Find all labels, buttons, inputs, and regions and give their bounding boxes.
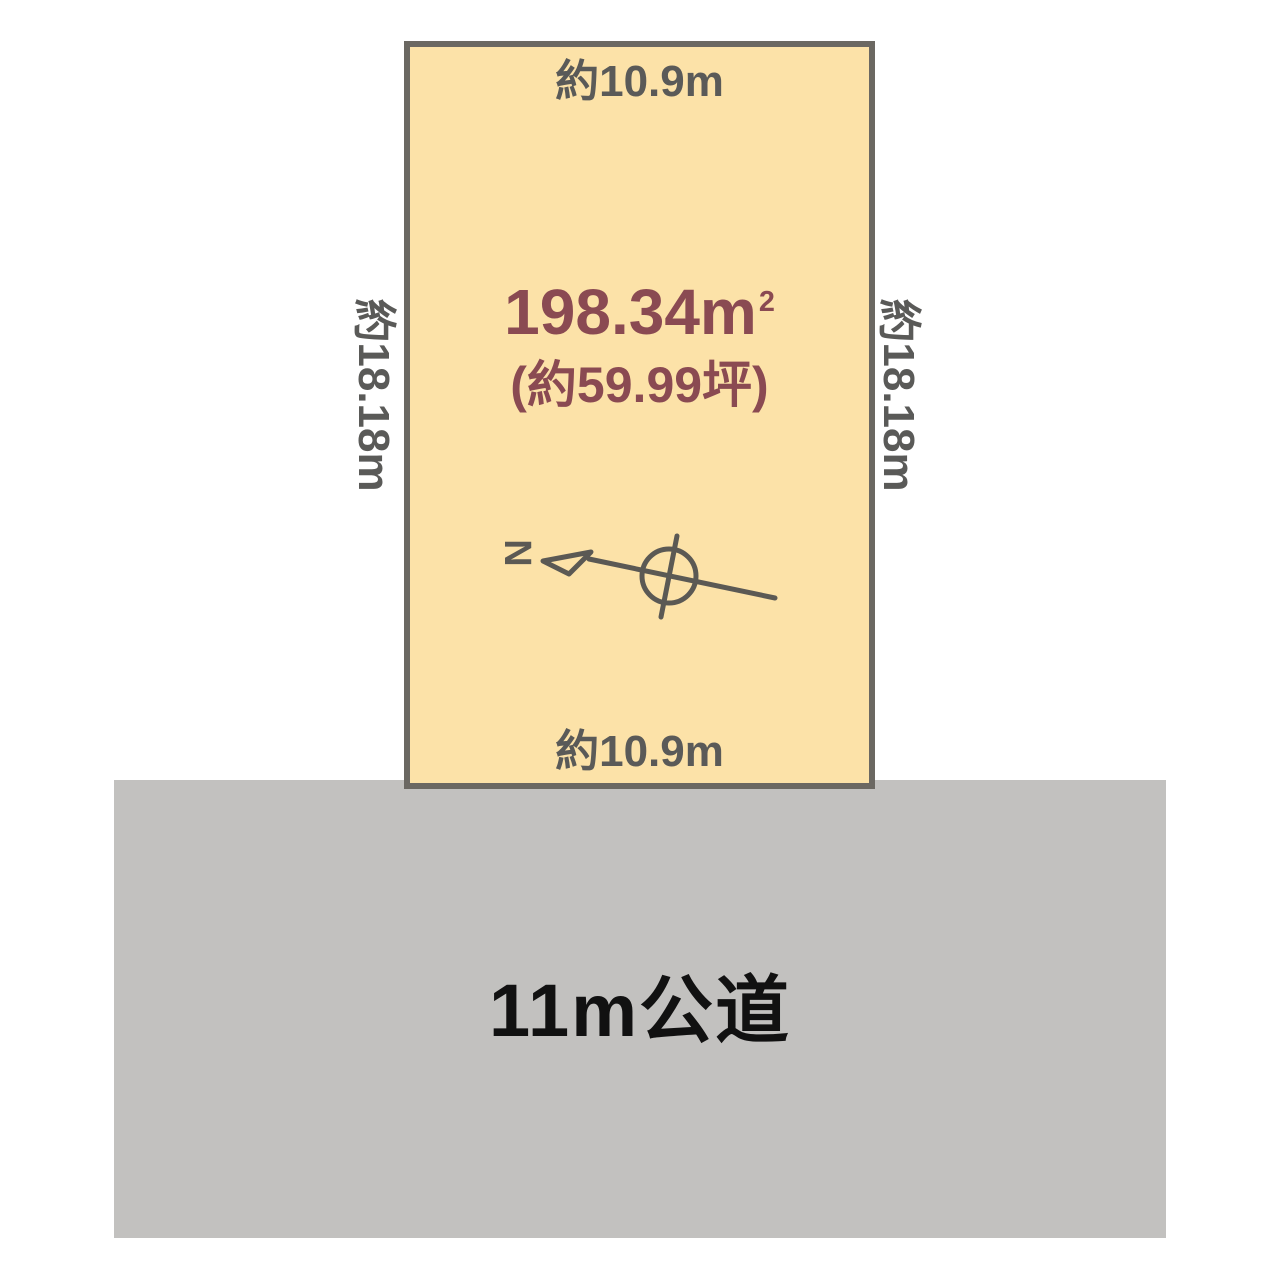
area-square-meters-exponent: 2 (759, 286, 775, 318)
area-square-meters-value: 198.34m (504, 276, 757, 348)
dimension-bottom: 約10.9m (404, 730, 875, 774)
compass-axis-line (589, 559, 775, 598)
land-plot-diagram: 11m公道 約10.9m 約10.9m 約18.18m 約18.18m 198.… (0, 0, 1280, 1280)
road-area: 11m公道 (114, 780, 1166, 1238)
north-compass-icon: N (480, 505, 820, 655)
north-arrowhead-icon (543, 552, 591, 574)
area-square-meters: 198.34m2 (404, 280, 875, 344)
area-label-group: 198.34m2 (約59.99坪) (404, 280, 875, 410)
dimension-left: 約18.18m (351, 298, 395, 491)
dimension-right: 約18.18m (876, 298, 920, 491)
dimension-top: 約10.9m (404, 60, 875, 104)
road-label: 11m公道 (114, 974, 1166, 1048)
area-tsubo: (約59.99坪) (404, 360, 875, 410)
north-label: N (496, 539, 538, 566)
land-parcel (404, 41, 875, 789)
